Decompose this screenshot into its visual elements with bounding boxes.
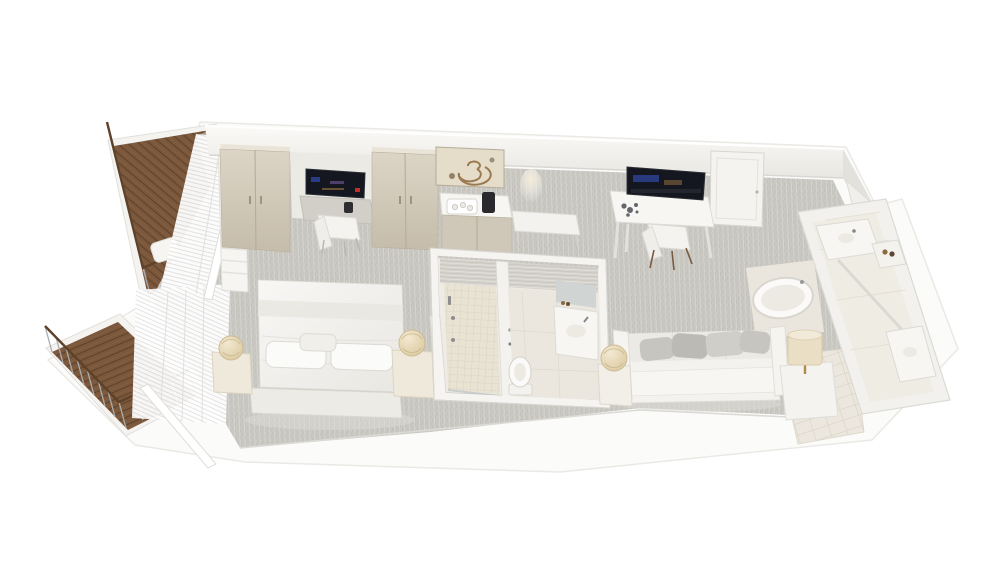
floorplan-svg — [0, 0, 1000, 563]
floorplan-render — [0, 0, 1000, 563]
tv-living — [627, 167, 705, 200]
wardrobe-right — [372, 147, 438, 250]
bathroom-center — [430, 248, 610, 408]
sofa — [613, 326, 789, 412]
amenity-tray — [447, 199, 477, 214]
tv-bedroom — [306, 169, 365, 198]
double-bed — [245, 280, 415, 430]
kettle — [344, 202, 353, 213]
coffee-machine — [482, 192, 495, 213]
minibar-console — [440, 192, 512, 258]
right-vanity-upper — [816, 219, 880, 260]
sofa-seat-front — [626, 367, 780, 396]
shell-artwork — [436, 147, 504, 188]
side-table-left — [598, 345, 632, 406]
bed-headboard — [250, 388, 402, 418]
wardrobe-left — [220, 144, 290, 252]
ceiling-spotlight-glow — [520, 169, 542, 203]
entry-door — [710, 151, 764, 227]
toilet-center — [509, 357, 532, 395]
